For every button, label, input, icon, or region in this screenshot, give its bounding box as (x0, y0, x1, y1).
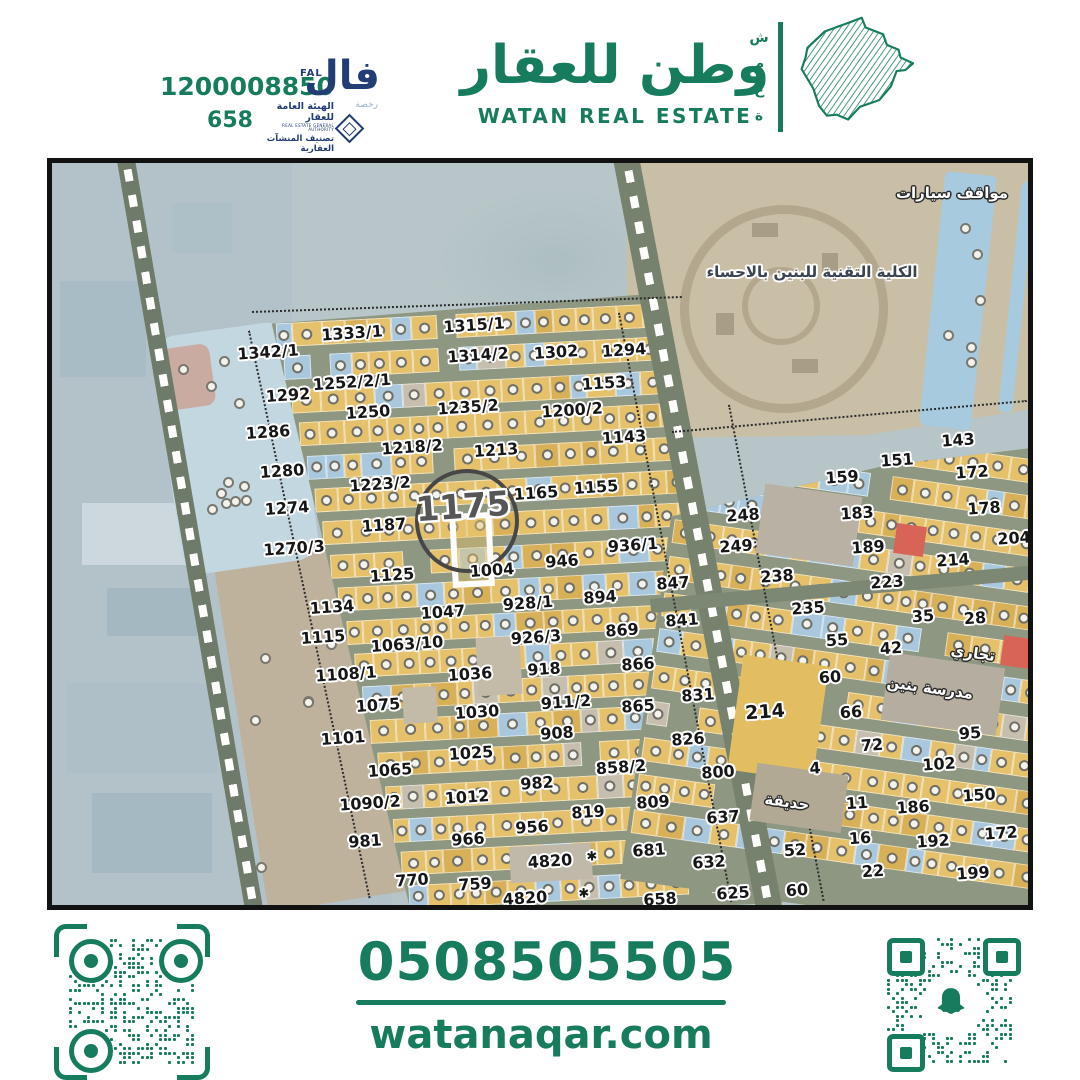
parcel-cell (419, 649, 440, 674)
parcel-label: 1143 (601, 426, 647, 448)
tree-dot (206, 381, 217, 392)
parcel-cell (1021, 421, 1028, 448)
parcel-label: 35 (911, 606, 935, 627)
parcel-cell (1011, 752, 1028, 779)
parcel-label: 911/2 (540, 691, 592, 713)
parcel-label: 869 (605, 619, 640, 640)
parcel-label: 981 (348, 830, 383, 851)
parcel-label: 1250 (345, 401, 391, 423)
parcel-label: 159 (825, 466, 860, 487)
parcel-cell (657, 813, 686, 840)
brand-vertical-text: شمعة (746, 26, 772, 130)
parcel-cell (500, 411, 526, 436)
parcel-cell (568, 775, 598, 800)
flyer: 1200008850 658 FAL فال رخصة الهيئة العام… (0, 0, 1080, 1080)
parcel-label: 1125 (369, 564, 415, 586)
parcel-label: 1155 (573, 476, 619, 498)
tree-dot (943, 330, 954, 341)
parcel-cell (556, 575, 583, 600)
parcel-cell (322, 520, 352, 545)
parcel-cell (534, 309, 553, 334)
parcel-cell (428, 883, 452, 905)
parcel-cell (544, 743, 564, 768)
parcel-label: 956 (515, 816, 550, 837)
parcel-cell (584, 507, 609, 532)
parcel-label: 214 (744, 700, 785, 725)
tree-dot (207, 504, 218, 515)
parcel-cell (319, 420, 345, 445)
parcel-cell (401, 784, 424, 809)
parcel-label: 858/2 (595, 756, 647, 778)
parcel-label: 1286 (245, 421, 291, 443)
parcel-cell (315, 487, 339, 512)
parcel-label: 42 (879, 638, 903, 659)
parcel-label: 826 (671, 728, 706, 749)
parcel-label: 625 (716, 882, 751, 903)
parcel-cell (631, 809, 661, 836)
parcel-label: 770 (395, 869, 430, 890)
qr-code-left (57, 927, 207, 1077)
building-footprint (172, 203, 232, 253)
tree-dot (234, 398, 245, 409)
parcel-cell (369, 718, 397, 743)
parcel-label: 1153 (581, 372, 627, 394)
parcel-label: 238 (760, 565, 795, 586)
building-footprint (60, 281, 146, 377)
parcel-label: 1012 (444, 786, 490, 808)
parcel-label: 1187 (361, 514, 407, 536)
parcel-cell (391, 316, 412, 341)
parcel-label: 982 (520, 772, 555, 793)
parcel-label: 1075 (355, 694, 401, 716)
parcel-cell (641, 404, 661, 429)
parcel-label: 192 (916, 830, 951, 851)
parcel-label: 1036 (447, 663, 493, 685)
parcel-cell (501, 377, 524, 402)
parcel-cell (769, 459, 801, 487)
parcel-cell (859, 768, 886, 795)
parcel-cell (910, 442, 941, 470)
parcel-label: 52 (783, 840, 807, 861)
rega-authority-logo: الهيئة العامة للعقار REAL ESTATE GENERAL… (256, 102, 360, 155)
parcel-cell (523, 376, 551, 401)
parcel-label: 759 (458, 873, 493, 894)
building-footprint (107, 588, 197, 636)
parcel-cell (1009, 456, 1028, 483)
parcel-label: 199 (956, 862, 991, 883)
parcel-cell (307, 455, 327, 480)
parcel-label: 214 (936, 549, 971, 570)
parcel-cell (742, 455, 772, 483)
parcel-label: 4 (809, 758, 821, 778)
snapchat-ghost-icon (923, 976, 979, 1032)
parcel-label: 151 (880, 449, 915, 470)
parcel-cell (911, 479, 939, 506)
parcel-cell (409, 817, 433, 842)
parcel-cell (393, 818, 410, 843)
parcel-cell (344, 453, 363, 478)
parcel-label: 4820 (502, 887, 548, 905)
parcel-cell (597, 640, 624, 665)
parcel-label: 235 (791, 597, 826, 618)
parcel-cell (356, 586, 379, 611)
parcel-cell (858, 435, 878, 461)
parcel-label: 1292 (265, 384, 311, 406)
parcel-label: 1213 (473, 439, 519, 461)
parcel-cell (442, 848, 472, 873)
parcel-label: 60 (785, 880, 809, 901)
parcel-label: 204 (997, 527, 1028, 548)
parcel-cell (498, 712, 528, 737)
map: 1342/11333/11315/11314/2130212941252/2/1… (52, 163, 1028, 905)
parcel-cell (940, 520, 968, 547)
parcel-label: 1004 (469, 559, 515, 581)
parcel-label: ✱ (586, 849, 598, 865)
footer-divider (356, 1000, 726, 1005)
brand-arabic: وطن للعقار (460, 30, 770, 102)
phone-number: 0508505505 (358, 932, 737, 993)
parcel-label: 16 (848, 828, 872, 849)
parcel-cell (1011, 863, 1028, 891)
tree-dot (221, 498, 232, 509)
parcel-cell (840, 432, 861, 458)
parcel-label: 248 (726, 504, 761, 525)
qr-code-snapchat (875, 926, 1025, 1076)
saudi-map-icon (790, 14, 916, 132)
parcel-cell (527, 744, 545, 769)
parcel-label: 1065 (367, 759, 413, 781)
parcel-label: 28 (963, 608, 987, 629)
parcel-cell (516, 510, 545, 535)
parcel-label: 1294 (601, 339, 647, 361)
parcel-cell (378, 585, 398, 610)
parcel-cell (1001, 418, 1024, 445)
parcel-label: ✱ (578, 886, 590, 902)
building-footprint (92, 793, 212, 873)
parcel-cell (423, 783, 441, 808)
parcel-cell (412, 348, 439, 373)
parcel-label: 1047 (420, 601, 466, 623)
parcel-label: 1274 (264, 497, 310, 519)
parcel-label: 819 (571, 801, 606, 822)
parcel-cell (562, 508, 586, 533)
parcel-label: 95 (958, 723, 982, 744)
tree-dot (975, 295, 986, 306)
vacant-parcel (402, 686, 438, 724)
parcel-cell (576, 307, 594, 332)
brand-logo: وطن للعقار WATAN REAL ESTATE (460, 30, 770, 128)
parcel-label: 1030 (454, 701, 500, 723)
parcel-label: 189 (851, 536, 886, 557)
tree-dot (960, 223, 971, 234)
parcel-cell (985, 416, 1005, 442)
parcel-label: 60 (818, 667, 842, 688)
parcel-cell (1001, 492, 1027, 519)
parcel-cell (432, 816, 450, 841)
tree-dot (219, 356, 230, 367)
parcel-label: 681 (632, 839, 667, 860)
parcel-label: 918 (527, 658, 562, 679)
parcel-label: 841 (665, 609, 700, 630)
parcel-cell (1013, 605, 1028, 631)
tree-dot (260, 653, 271, 664)
parcel-label: 1025 (448, 742, 494, 764)
parcel-cell (593, 306, 618, 331)
parcel-cell (550, 375, 572, 400)
rega-authority-text: الهيئة العامة للعقار REAL ESTATE GENERAL… (256, 102, 334, 155)
building-footprint (67, 683, 217, 773)
parcel-label: 1134 (309, 596, 355, 618)
parcel-cell (918, 628, 947, 655)
parcel-cell (552, 308, 577, 333)
parcel-label: 172 (955, 461, 990, 482)
parcel-label: 632 (692, 851, 727, 872)
parcel-cell (598, 874, 621, 899)
mosque-parcel (756, 484, 863, 567)
parcel-label: 637 (706, 806, 741, 827)
parcel-label: 249 (719, 535, 754, 556)
parcel-label: 4820 (527, 850, 573, 872)
parcel-label: 1101 (320, 727, 366, 749)
parcel-cell (597, 840, 622, 865)
tree-dot (223, 477, 234, 488)
parcel-cell (571, 641, 598, 666)
parcel-label: 186 (896, 796, 931, 817)
parcel-cell (608, 505, 639, 531)
parcel-cell (330, 553, 355, 578)
parcel-label: 172 (984, 822, 1019, 843)
parcel-label: 66 (839, 702, 863, 723)
parcel-label: 809 (636, 791, 671, 812)
parcel-label: 894 (583, 586, 618, 607)
parcel-cell (410, 315, 438, 340)
parcel-cell (490, 779, 521, 805)
parcel-cell (602, 673, 626, 698)
parcel-cell (623, 472, 641, 497)
parcel-label: 865 (621, 695, 656, 716)
parcel-cell (346, 620, 364, 645)
parcel-cell (804, 834, 830, 861)
parcel-label: 1280 (259, 460, 305, 482)
parcel-cell (1015, 789, 1028, 816)
parcel-cell (544, 509, 563, 534)
parcel-cell (558, 441, 583, 466)
parcel-label: 11 (845, 793, 869, 814)
rega-diamond-icon (335, 113, 365, 143)
parcel-label: 178 (967, 497, 1002, 518)
building-footprint (82, 503, 190, 565)
parcel-cell (563, 742, 583, 767)
contact-row: 0508505505 (350, 932, 730, 993)
tree-dot (966, 357, 977, 368)
parcel-label: 928/1 (502, 592, 554, 614)
parcel-cell (700, 450, 728, 477)
parcel-cell (582, 440, 600, 465)
parcel-cell (580, 708, 600, 733)
parcel-label: 183 (840, 502, 875, 523)
parcel-label: 1165 (513, 482, 559, 504)
parcel-label: 1115 (300, 626, 346, 648)
parcel-cell (628, 571, 656, 596)
parcel-cell (477, 613, 495, 638)
brand-english: WATAN REAL ESTATE (460, 104, 770, 128)
parcel-cell (325, 454, 345, 479)
parcel-cell (535, 442, 560, 467)
brand-divider-bar (778, 22, 783, 132)
parcel-label: 102 (922, 753, 957, 774)
parcel-cell (396, 584, 417, 609)
parcel-label: الكلية التقنية للبنين بالاحساء (707, 263, 918, 281)
commercial-parcel-red (1000, 635, 1028, 669)
parcel-label: 658 (643, 888, 678, 905)
parcel-label: 847 (656, 572, 691, 593)
parcel-label: 966 (451, 828, 486, 849)
tree-dot (256, 862, 267, 873)
commercial-parcel-red (893, 523, 927, 557)
parcel-cell (471, 847, 494, 872)
parcel-label: 223 (870, 571, 905, 592)
parcel-label: 22 (861, 861, 885, 882)
website-url: watanaqar.com (356, 1012, 726, 1058)
highlighted-parcel-label: 1175 (414, 484, 511, 531)
fal-arabic-label: فال (304, 54, 380, 98)
parcel-label: 143 (941, 429, 976, 450)
parcel-label: 946 (545, 550, 580, 571)
parcel-cell (502, 745, 528, 770)
parcel-label: 908 (540, 722, 575, 743)
parcel-label: 1302 (533, 341, 579, 363)
parcel-label: 936/1 (607, 534, 659, 556)
parcel-label: 55 (825, 630, 849, 651)
parcel-label: 150 (962, 784, 997, 805)
parcel-label: 866 (621, 653, 656, 674)
parcel-label: 831 (681, 684, 716, 705)
parcel-cell (390, 350, 414, 375)
parcel-cell (428, 749, 450, 774)
parcel-cell (562, 608, 584, 633)
parcel-cell (402, 382, 426, 407)
parcel-label: 72 (860, 735, 884, 756)
parcel-cell (637, 504, 656, 529)
parcel-cell (299, 421, 320, 446)
parcel-label: 800 (701, 761, 736, 782)
parcel-cell (1001, 714, 1028, 741)
parcel-label: 926/3 (510, 626, 562, 648)
parcel-cell (397, 650, 420, 675)
parcel-label: مواقف سيارات (896, 184, 1008, 202)
parcel-cell (830, 727, 857, 754)
parcel-cell (515, 310, 535, 335)
